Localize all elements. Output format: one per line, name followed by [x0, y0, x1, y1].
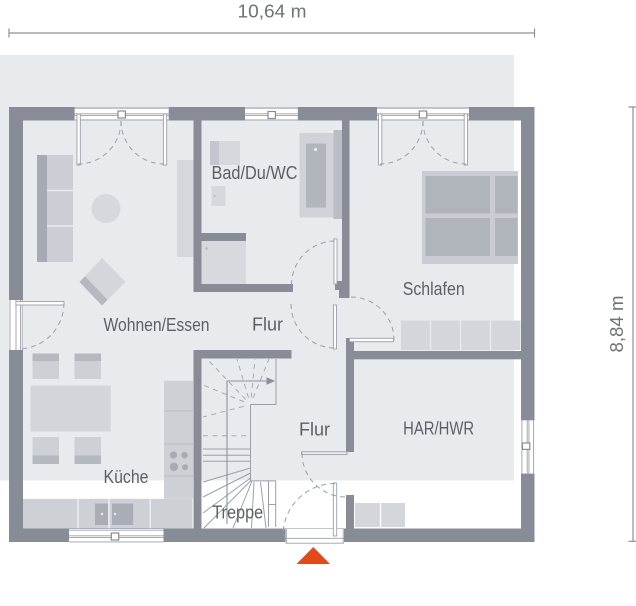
svg-text:Küche: Küche — [104, 467, 149, 487]
svg-text:Flur: Flur — [252, 314, 283, 334]
svg-text:Bad/Du/WC: Bad/Du/WC — [212, 163, 298, 183]
svg-text:Schlafen: Schlafen — [403, 279, 465, 299]
svg-text:Flur: Flur — [299, 419, 330, 439]
svg-text:10,64 m: 10,64 m — [238, 1, 307, 21]
svg-text:Wohnen/Essen: Wohnen/Essen — [104, 315, 210, 335]
svg-text:8,84 m: 8,84 m — [607, 296, 627, 353]
svg-text:HAR/HWR: HAR/HWR — [403, 419, 474, 439]
svg-text:Treppe: Treppe — [212, 503, 263, 523]
